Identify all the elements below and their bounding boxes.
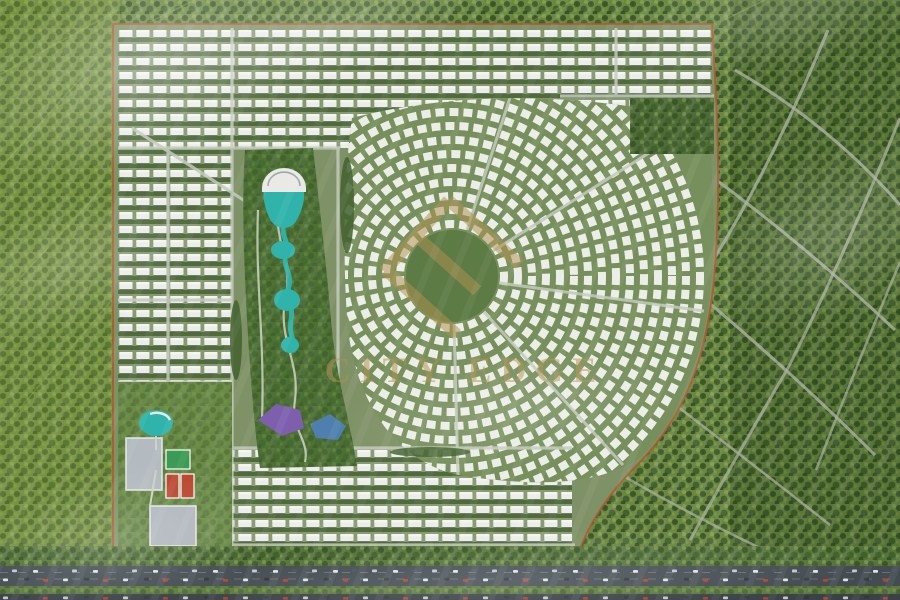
masterplan-render: CITY EDGE (0, 0, 900, 600)
sports-court-green (166, 450, 190, 469)
service-road-cars (0, 592, 900, 600)
forest-right-tint (730, 0, 900, 600)
watermark-text: CITY EDGE (325, 350, 606, 390)
highway-corridor (0, 546, 900, 600)
tennis-court-1 (166, 474, 179, 498)
community-building-2 (150, 506, 196, 546)
sports-zone (118, 382, 232, 556)
forest-pocket (630, 96, 714, 154)
site-plan-svg: CITY EDGE (0, 0, 900, 600)
lagoon-mid-2 (274, 289, 300, 311)
villa-rows-left-band (118, 150, 232, 382)
lagoon-mid-1 (271, 241, 295, 259)
traffic-cars (0, 567, 900, 585)
lagoon-lower (281, 337, 299, 353)
tennis-court-2 (181, 474, 194, 498)
forest-left-tint (0, 0, 120, 600)
